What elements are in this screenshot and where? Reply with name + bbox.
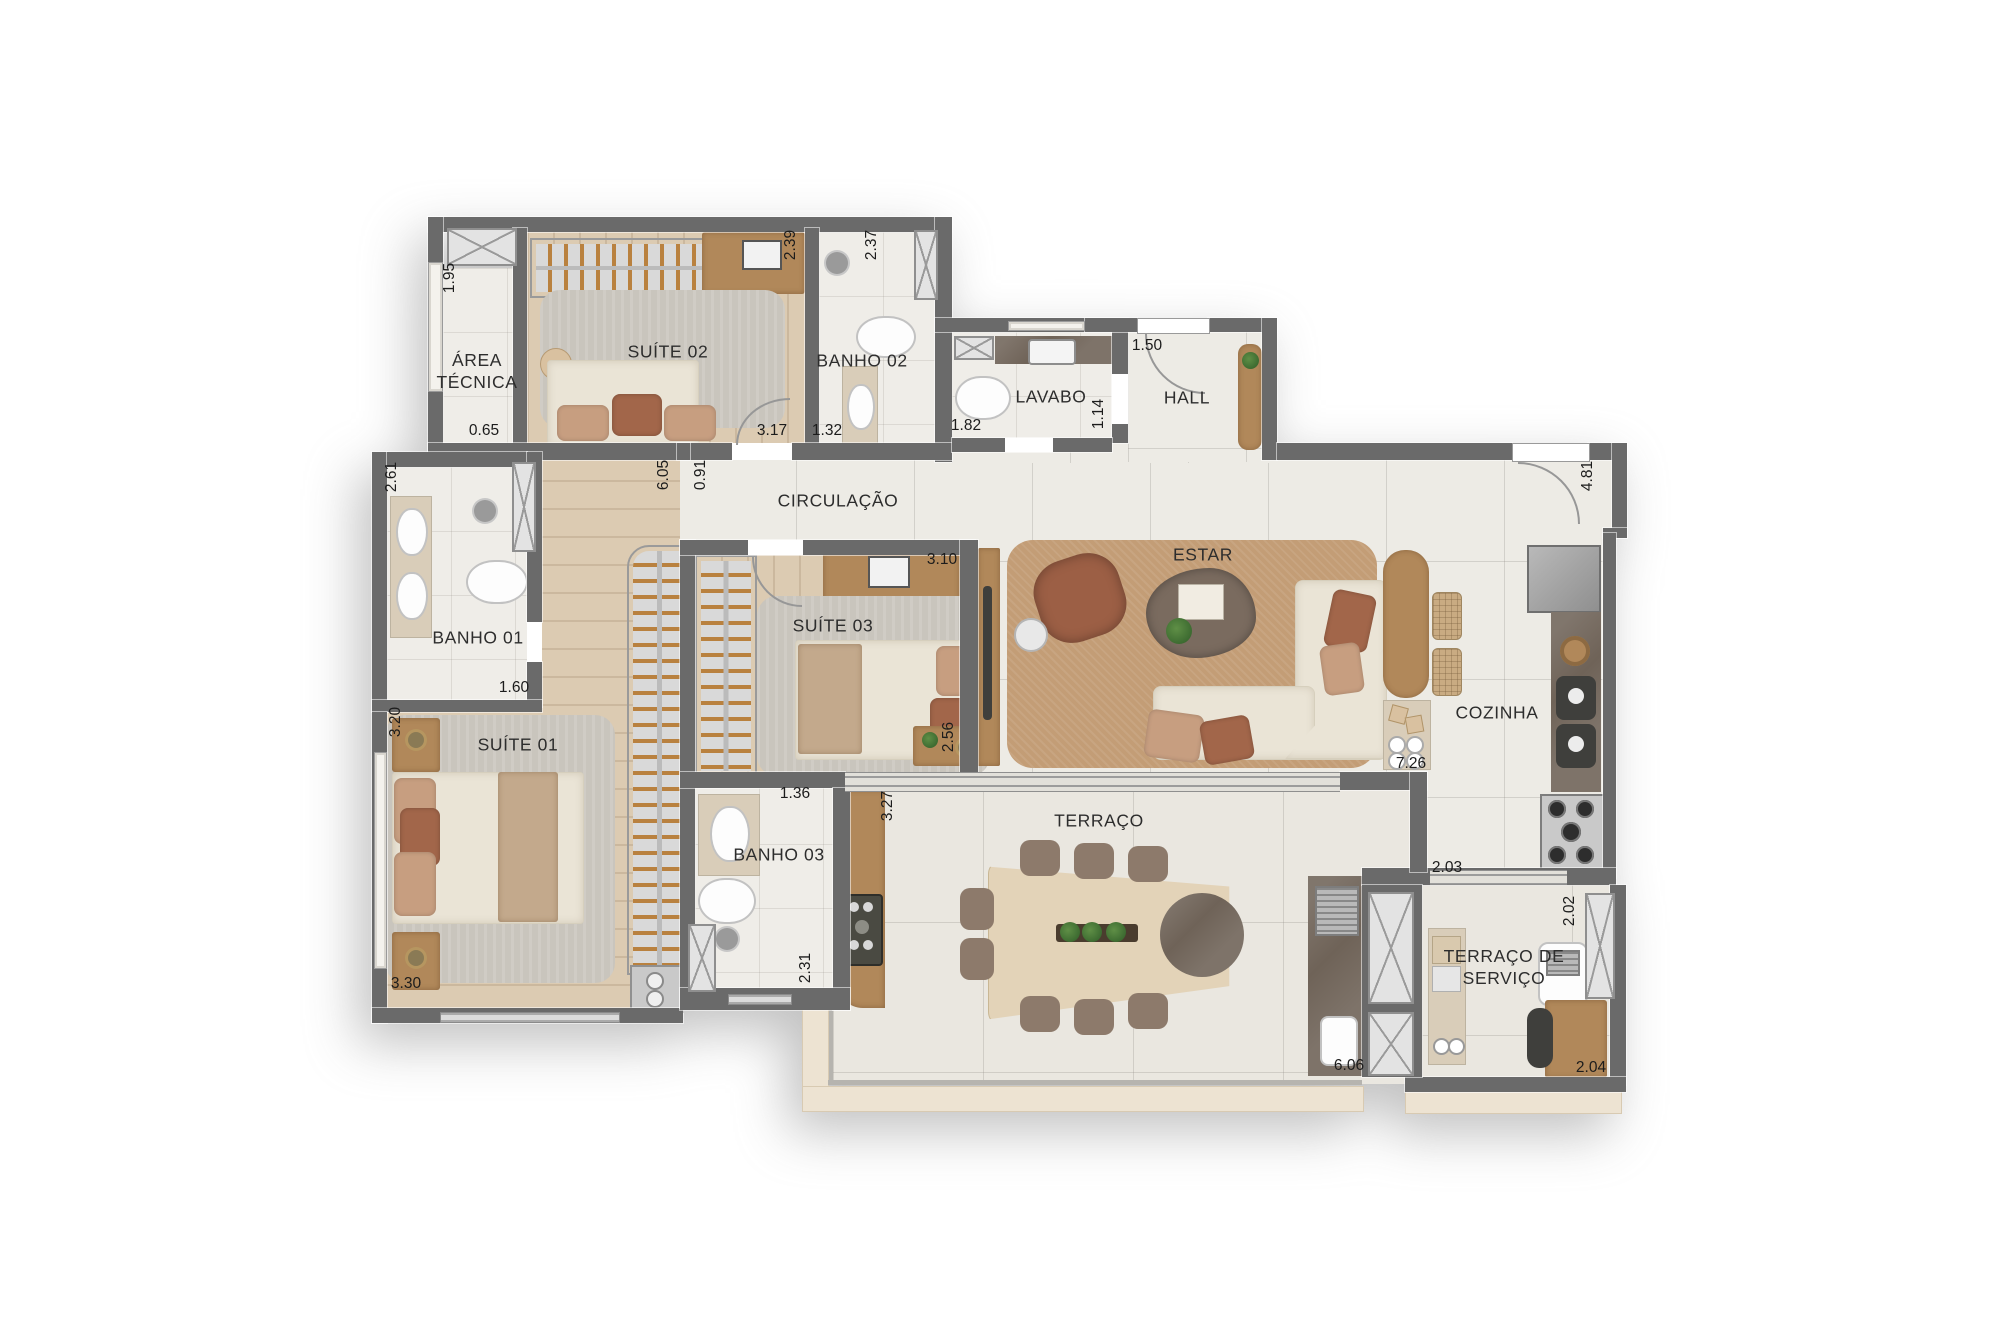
toilet	[955, 376, 1011, 420]
round-table	[1160, 893, 1244, 977]
sink-drain	[1568, 688, 1584, 704]
plant	[1082, 922, 1102, 942]
grill-knob	[849, 940, 859, 950]
dimension-label: 1.95	[441, 263, 459, 293]
dimension-label: 2.03	[1432, 859, 1462, 877]
fruit-bowl	[1560, 636, 1590, 666]
bar-stool	[1432, 592, 1462, 640]
door-opening	[732, 443, 792, 460]
toilet	[466, 560, 528, 604]
shaft-hatch	[1368, 892, 1414, 1004]
sink	[396, 508, 428, 556]
wall	[1277, 443, 1512, 460]
room-label-circulacao: CIRCULAÇÃO	[778, 491, 899, 512]
wall	[1085, 318, 1137, 332]
tv	[983, 586, 992, 720]
pillow	[664, 405, 716, 441]
shaft-hatch	[1585, 893, 1615, 999]
napkin	[1405, 715, 1425, 735]
room-label-terraco-servico: TERRAÇO DE SERVIÇO	[1429, 946, 1579, 990]
wall	[1405, 1077, 1626, 1092]
pillow	[1319, 641, 1366, 696]
room-label-banho-02: BANHO 02	[816, 351, 907, 372]
grill-burner	[855, 920, 869, 934]
closet-item	[646, 990, 664, 1008]
balcony-band	[802, 1008, 829, 1090]
floor-plan-canvas: ÁREA TÉCNICA SUÍTE 02 BANHO 02 LAVABO HA…	[0, 0, 2000, 1334]
ac-vent	[1315, 886, 1359, 936]
burner	[1576, 846, 1594, 864]
shaft-hatch	[954, 336, 994, 360]
room-label-terraco: TERRAÇO	[1054, 811, 1144, 832]
bar-stool	[1432, 648, 1462, 696]
dimension-label: 2.61	[383, 462, 401, 492]
wall	[960, 540, 978, 778]
pillow	[1199, 714, 1256, 766]
wall	[792, 443, 952, 460]
room-label-area-tecnica: ÁREA TÉCNICA	[431, 350, 523, 394]
dimension-label: 3.20	[387, 707, 405, 737]
pillow	[1143, 708, 1205, 763]
wall	[680, 772, 845, 788]
dimension-label: 3.27	[879, 791, 897, 821]
plant	[1166, 618, 1192, 644]
lamp	[408, 950, 424, 966]
pillow	[612, 394, 662, 436]
shower-icon	[716, 928, 738, 950]
fridge	[1527, 545, 1601, 613]
chair	[1020, 996, 1060, 1032]
entrance-door-opening	[1137, 318, 1210, 334]
dimension-label: 3.17	[757, 422, 787, 440]
shaft-hatch	[447, 228, 517, 266]
burner	[1548, 800, 1566, 818]
lamp	[408, 732, 424, 748]
dimension-label: 1.50	[1132, 337, 1162, 355]
dimension-label: 2.39	[782, 230, 800, 260]
laptop	[868, 556, 910, 588]
room-label-banho-01: BANHO 01	[432, 628, 523, 649]
shower-icon	[474, 500, 496, 522]
grill-knob	[849, 902, 859, 912]
balcony-band	[802, 1086, 1364, 1112]
chair	[960, 888, 994, 930]
dimension-label: 1.32	[812, 422, 842, 440]
dimension-label: 6.05	[655, 460, 673, 490]
side-table	[1014, 618, 1048, 652]
room-label-estar: ESTAR	[1173, 545, 1233, 566]
chair	[1527, 1008, 1553, 1068]
room-label-cozinha: COZINHA	[1456, 703, 1539, 724]
burner	[1561, 822, 1581, 842]
room-label-suite-02: SUÍTE 02	[628, 342, 709, 363]
laptop	[742, 240, 782, 270]
plant	[1106, 922, 1126, 942]
dimension-label: 1.36	[780, 785, 810, 803]
room-label-lavabo: LAVABO	[1015, 387, 1086, 408]
grill-knob	[863, 902, 873, 912]
plant	[1060, 922, 1080, 942]
dimension-label: 2.31	[797, 953, 815, 983]
sink	[396, 572, 428, 620]
door-opening	[748, 540, 803, 555]
dimension-label: 1.60	[499, 679, 529, 697]
plant	[922, 732, 938, 748]
chair	[960, 938, 994, 980]
dimension-label: 3.10	[927, 551, 957, 569]
dimension-label: 6.06	[1334, 1057, 1364, 1075]
room-label-hall: HALL	[1164, 388, 1210, 409]
dimension-label: 3.30	[391, 975, 421, 993]
sliding-door	[845, 772, 1340, 792]
balcony-glass-rail	[828, 1080, 1362, 1085]
window	[440, 1012, 620, 1023]
toilet	[698, 878, 756, 924]
shaft-hatch	[1368, 1012, 1414, 1076]
shower-icon	[826, 252, 848, 274]
dimension-label: 0.65	[469, 422, 499, 440]
door-opening	[527, 622, 542, 662]
wardrobe	[530, 238, 710, 298]
sink	[847, 384, 875, 430]
dimension-label: 1.82	[951, 417, 981, 435]
door-opening	[1112, 374, 1128, 424]
blanket	[798, 644, 862, 754]
door-opening	[1005, 438, 1053, 452]
wardrobe	[695, 555, 757, 777]
window	[1008, 321, 1085, 331]
burner	[1548, 846, 1566, 864]
room-label-suite-03: SUÍTE 03	[793, 616, 874, 637]
grill-knob	[863, 940, 873, 950]
room-label-banho-03: BANHO 03	[733, 845, 824, 866]
wall	[805, 228, 819, 445]
wall	[1410, 772, 1427, 872]
wall	[1262, 318, 1277, 460]
knob	[1448, 1038, 1465, 1055]
chair	[1128, 993, 1168, 1029]
dimension-label: 2.56	[940, 722, 958, 752]
wall	[1603, 533, 1616, 878]
plant	[1242, 352, 1259, 369]
window	[728, 994, 792, 1005]
balcony-band	[1405, 1090, 1622, 1114]
dimension-label: 2.04	[1576, 1059, 1606, 1077]
floor-plan	[0, 0, 2000, 1334]
chair	[1074, 843, 1114, 879]
wall	[677, 443, 690, 460]
wall	[833, 788, 850, 1010]
door-opening	[1512, 443, 1590, 462]
sink-drain	[1568, 736, 1584, 752]
chair	[1128, 846, 1168, 882]
pillow	[557, 405, 609, 441]
wall	[387, 452, 527, 467]
chair	[1074, 999, 1114, 1035]
dimension-label: 2.37	[863, 230, 881, 260]
dimension-label: 1.14	[1090, 399, 1108, 429]
burner	[1576, 800, 1594, 818]
dimension-label: 7.26	[1396, 755, 1426, 773]
books	[1178, 584, 1224, 620]
closet-item	[646, 972, 664, 990]
shaft-hatch	[688, 924, 716, 992]
window	[374, 752, 387, 969]
dimension-label: 4.81	[1579, 461, 1597, 491]
bar-counter	[1383, 550, 1429, 698]
blanket	[498, 772, 558, 922]
sink	[1028, 339, 1076, 365]
dimension-label: 2.02	[1561, 896, 1579, 926]
shaft-hatch	[512, 462, 536, 552]
room-label-suite-01: SUÍTE 01	[478, 735, 559, 756]
pillow	[394, 852, 436, 916]
dimension-label: 0.91	[692, 460, 710, 490]
shaft-hatch	[914, 230, 938, 300]
chair	[1020, 840, 1060, 876]
wall	[1612, 443, 1627, 538]
